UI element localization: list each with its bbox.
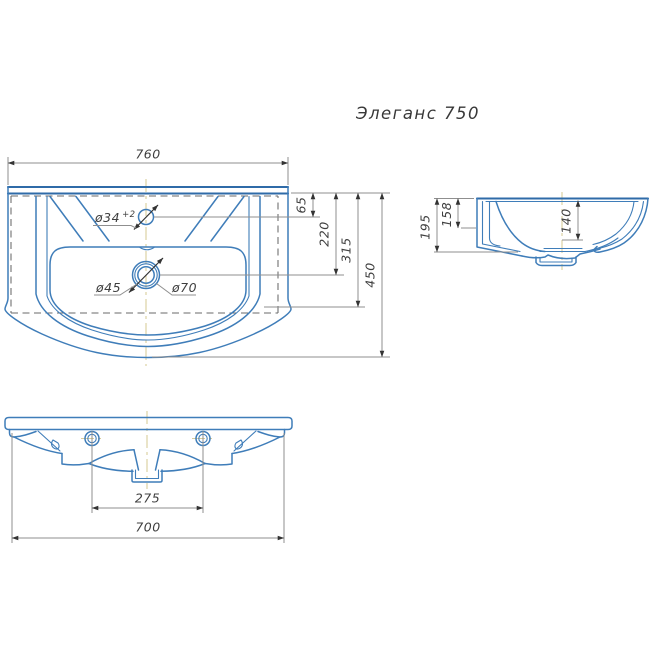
side-bowl-right (585, 238, 618, 252)
dim-bowl-front-offset: 315 (339, 193, 359, 307)
front-right-side (205, 430, 285, 465)
side-front-lip (593, 199, 648, 253)
dim-bottom-width: 700 (12, 520, 284, 539)
dim-mount-hole-spacing: 275 (92, 491, 203, 509)
technical-drawing: Элеганс 750 (0, 0, 650, 650)
dim-bowl-depth: 140 (559, 201, 584, 241)
faucet-dia-label: ø34+2 (94, 210, 136, 225)
top-view: ø34+2 ø45 ø70 760 65 220 315 (5, 147, 390, 367)
dim-overall-depth: 450 (363, 193, 383, 357)
side-back-wall (477, 199, 545, 257)
dim-faucet-offset: 65 (294, 193, 314, 217)
svg-text:158: 158 (439, 202, 454, 227)
drain-outer-dia-label: ø70 (171, 280, 197, 295)
dim-side-height: 195 (418, 199, 519, 253)
deck-diagonals (50, 197, 244, 242)
dim-back-apron-height: 158 (439, 199, 476, 229)
front-left-side (10, 430, 90, 465)
side-view: 195 158 140 (418, 192, 649, 270)
svg-text:700: 700 (135, 520, 160, 535)
drain-inner-dia-label: ø45 (95, 280, 121, 295)
top-view-basin (50, 247, 246, 335)
drawing-sheet: Элеганс 750 (0, 0, 650, 650)
dim-drain-offset: 220 (317, 193, 337, 275)
svg-text:220: 220 (317, 221, 332, 246)
svg-text:275: 275 (135, 491, 160, 506)
right-extension-lines (152, 193, 390, 357)
front-top-slab (5, 418, 292, 430)
top-view-back-edge (8, 187, 288, 194)
svg-text:140: 140 (559, 208, 574, 233)
svg-text:450: 450 (363, 262, 378, 287)
svg-text:315: 315 (339, 237, 354, 262)
front-view: 275 700 (5, 411, 292, 543)
drawing-title: Элеганс 750 (355, 104, 480, 123)
overflow-notch (140, 248, 154, 250)
svg-text:760: 760 (135, 147, 160, 162)
svg-text:195: 195 (418, 214, 433, 239)
dim-top-width: 760 (8, 147, 288, 186)
svg-text:65: 65 (294, 197, 309, 214)
top-view-rim-inner (47, 197, 249, 341)
